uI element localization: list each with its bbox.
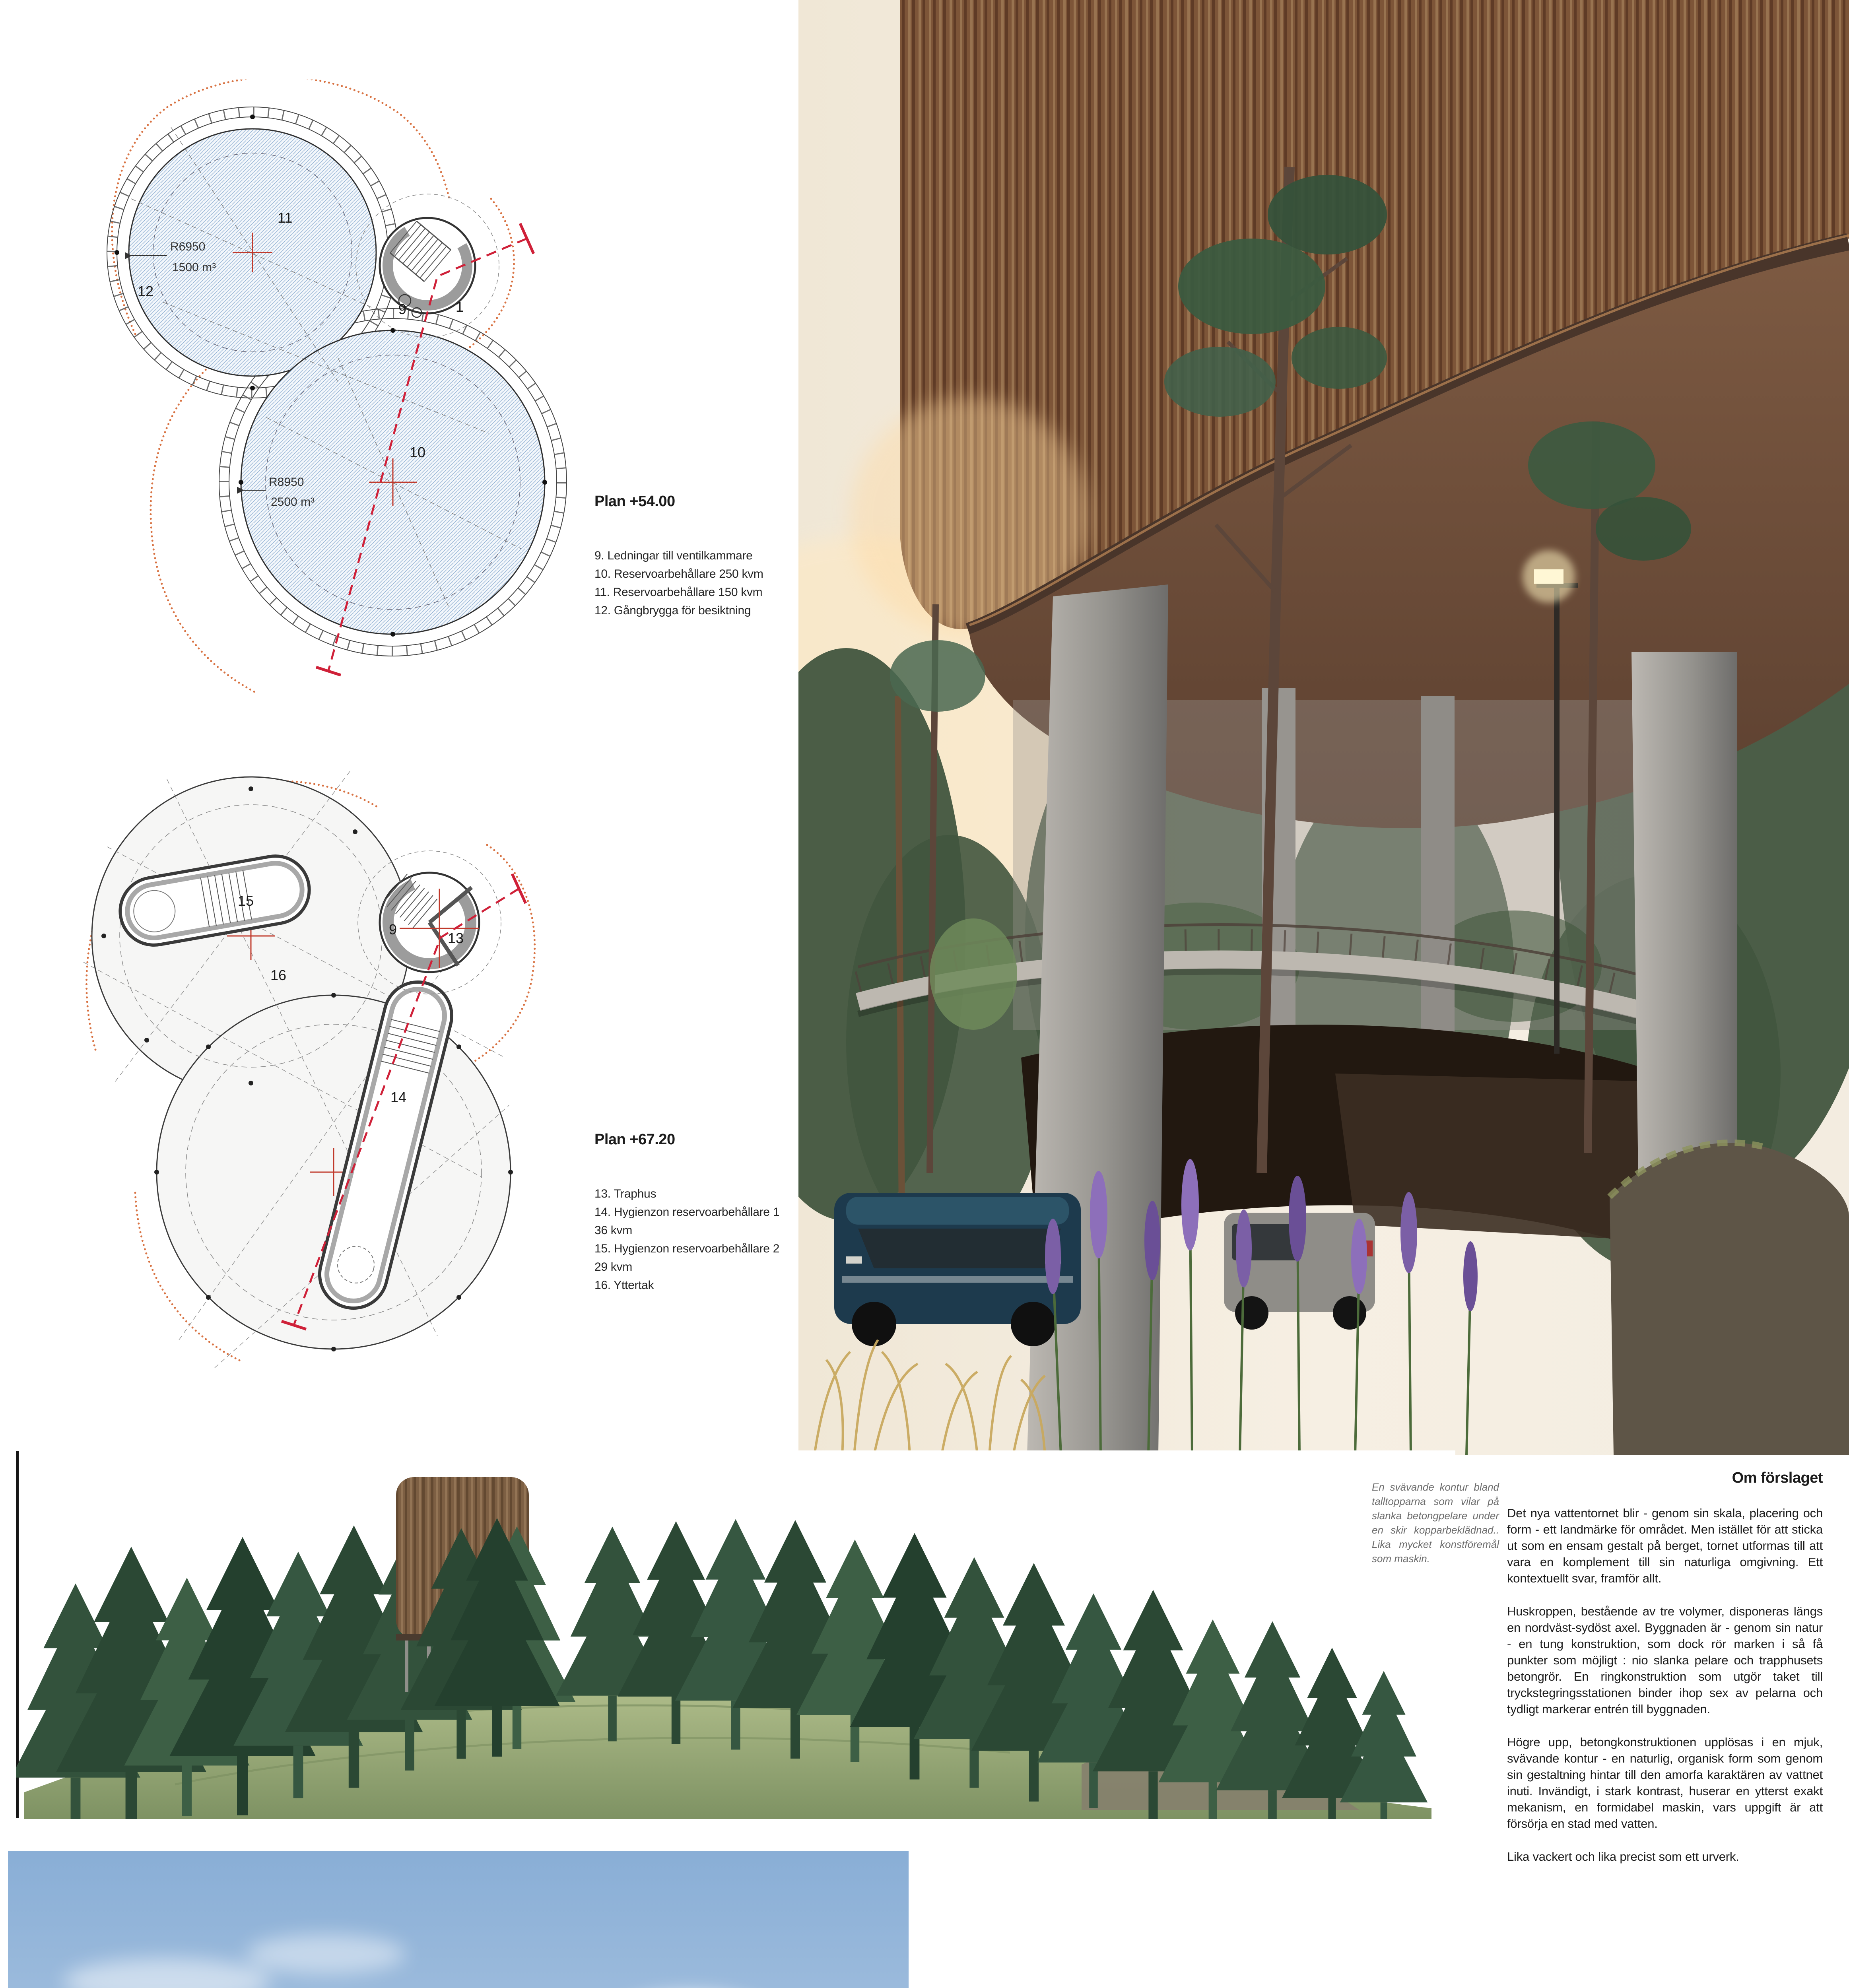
about-column: Om förslaget Det nya vattentornet blir -… (1507, 1470, 1823, 1881)
legend-item: 10. Reservoarbehållare 250 kvm (594, 565, 795, 583)
svg-text:10: 10 (410, 444, 425, 460)
legend-item: 16. Yttertak (594, 1276, 795, 1295)
van-dark (834, 1193, 1081, 1346)
legend-item: 15. Hygienzon reservoarbehållare 2 (594, 1240, 795, 1258)
legend-item: 12. Gångbrygga för besiktning (594, 602, 795, 620)
legend-item: 29 kvm (594, 1258, 795, 1276)
plan-67-title: Plan +67.20 (594, 1131, 795, 1148)
legend-item: 11. Reservoarbehållare 150 kvm (594, 583, 795, 602)
svg-text:14: 14 (390, 1089, 406, 1105)
legend-item: 36 kvm (594, 1221, 795, 1240)
svg-text:15: 15 (238, 893, 254, 909)
elevation-montage (16, 1450, 1455, 1819)
about-paragraph: Huskroppen, bestående av tre volymer, di… (1507, 1603, 1823, 1717)
legend-item: 14. Hygienzon reservoarbehållare 1 (594, 1203, 795, 1221)
svg-text:1: 1 (456, 299, 464, 315)
dim-radius-bottom: R8950 (269, 476, 304, 489)
plan2-roof-outline (84, 771, 513, 1368)
dim-radius-top: R6950 (170, 240, 205, 253)
svg-text:16: 16 (270, 967, 286, 983)
plan-67-drawing: 15 16 13 9 14 (48, 747, 577, 1380)
about-paragraph: Lika vackert och lika precist som ett ur… (1507, 1848, 1823, 1865)
about-paragraph: Högre upp, betongkonstruktionen upplösas… (1507, 1734, 1823, 1832)
column-mid-2 (1421, 696, 1455, 1046)
rock-outcrop (1610, 1143, 1849, 1455)
legend-item: 13. Traphus (594, 1185, 795, 1203)
plan-54-legend: Plan +54.00 9. Ledningar till ventilkamm… (594, 493, 795, 620)
legend-item: 9. Ledningar till ventilkammare (594, 547, 795, 565)
svg-text:11: 11 (278, 210, 292, 226)
plan-54-drawing: R6950 1500 m³ R8950 2500 m³ 11 12 10 9 1 (99, 80, 600, 700)
plan-67-legend: Plan +67.20 13. Traphus 14. Hygienzon re… (594, 1131, 795, 1295)
plan-54-title: Plan +54.00 (594, 493, 795, 510)
frame-line (16, 1451, 19, 1818)
plan1-tanks (107, 107, 567, 656)
about-paragraph: Det nya vattentornet blir - genom sin sk… (1507, 1505, 1823, 1586)
photomontage-3a: Plan +51.05 1:200 | A1 (8, 1851, 909, 1988)
dim-volume-top: 1500 m³ (172, 261, 216, 274)
perspective-render (798, 0, 1849, 1455)
svg-text:12: 12 (138, 283, 153, 299)
svg-text:13: 13 (448, 930, 464, 946)
svg-text:9: 9 (389, 921, 397, 938)
elevation-note: En svävande kontur bland talltopparna so… (1372, 1480, 1499, 1566)
about-title: Om förslaget (1507, 1470, 1823, 1487)
dim-volume-bottom: 2500 m³ (271, 495, 315, 509)
svg-text:9: 9 (398, 301, 406, 317)
